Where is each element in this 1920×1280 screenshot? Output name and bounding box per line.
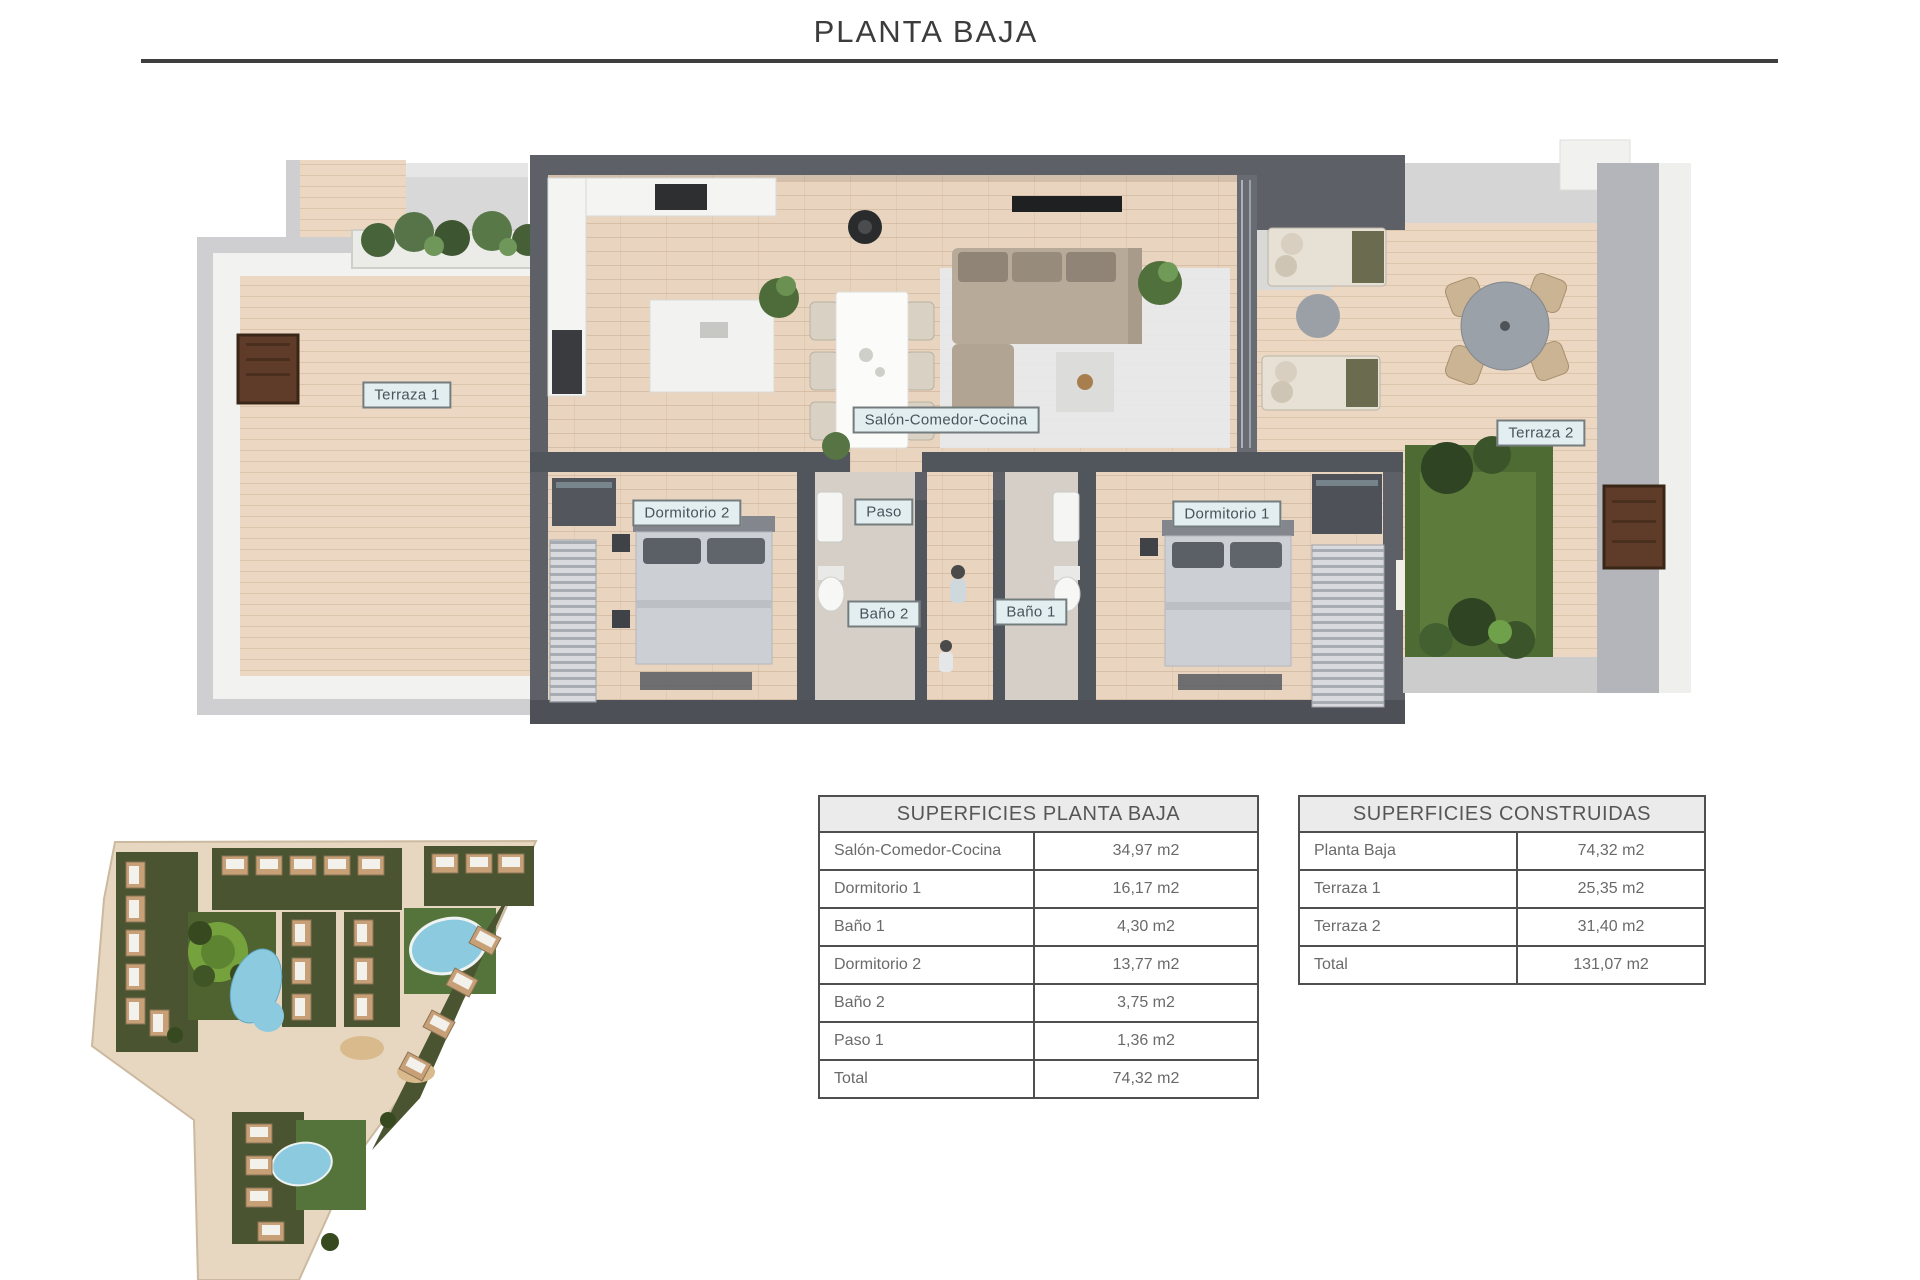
title-divider xyxy=(141,59,1778,63)
plant xyxy=(1158,262,1178,282)
area-cell: 25,35 m2 xyxy=(1518,871,1704,907)
terraza-2-gate xyxy=(1604,486,1664,568)
superficies-construidas-table: SUPERFICIES CONSTRUIDAS Planta Baja 74,3… xyxy=(1298,795,1706,985)
site-plan xyxy=(92,841,536,1280)
room-name-cell: Baño 2 xyxy=(820,985,1035,1021)
ottoman xyxy=(1296,294,1340,338)
table-row: Total 74,32 m2 xyxy=(820,1061,1257,1097)
table-row: Baño 2 3,75 m2 xyxy=(820,985,1257,1023)
room-name-cell: Total xyxy=(820,1061,1035,1097)
sun-lounger xyxy=(1262,356,1380,410)
area-cell: 74,32 m2 xyxy=(1518,833,1704,869)
terraza-1-area xyxy=(205,160,561,707)
area-cell: 1,36 m2 xyxy=(1035,1023,1257,1059)
table-title: SUPERFICIES CONSTRUIDAS xyxy=(1300,797,1704,833)
plant xyxy=(776,276,796,296)
table-row: Salón-Comedor-Cocina 34,97 m2 xyxy=(820,833,1257,871)
sun-lounger xyxy=(1268,228,1386,286)
table-row: Dormitorio 1 16,17 m2 xyxy=(820,871,1257,909)
room-name-cell: Planta Baja xyxy=(1300,833,1518,869)
room-label-salon: Salón-Comedor-Cocina xyxy=(853,407,1040,434)
ceiling-lamp xyxy=(848,210,882,244)
table-row: Paso 1 1,36 m2 xyxy=(820,1023,1257,1061)
table-row: Dormitorio 2 13,77 m2 xyxy=(820,947,1257,985)
table-row: Planta Baja 74,32 m2 xyxy=(1300,833,1704,871)
superficies-planta-baja-table: SUPERFICIES PLANTA BAJA Salón-Comedor-Co… xyxy=(818,795,1259,1099)
room-label-bano-2: Baño 2 xyxy=(847,601,920,628)
room-name-cell: Paso 1 xyxy=(820,1023,1035,1059)
room-name-cell: Total xyxy=(1300,947,1518,983)
area-cell: 31,40 m2 xyxy=(1518,909,1704,945)
table-row: Terraza 1 25,35 m2 xyxy=(1300,871,1704,909)
area-cell: 3,75 m2 xyxy=(1035,985,1257,1021)
garden xyxy=(1396,436,1553,659)
terraza-1-gate xyxy=(238,335,298,403)
room-name-cell: Baño 1 xyxy=(820,909,1035,945)
page-title: PLANTA BAJA xyxy=(0,14,1852,50)
area-cell: 74,32 m2 xyxy=(1035,1061,1257,1097)
plant xyxy=(822,432,850,460)
area-cell: 16,17 m2 xyxy=(1035,871,1257,907)
table-title: SUPERFICIES PLANTA BAJA xyxy=(820,797,1257,833)
table-row: Terraza 2 31,40 m2 xyxy=(1300,909,1704,947)
room-name-cell: Salón-Comedor-Cocina xyxy=(820,833,1035,869)
room-label-dormitorio-2: Dormitorio 2 xyxy=(632,500,741,527)
table-row: Baño 1 4,30 m2 xyxy=(820,909,1257,947)
room-label-terraza-1: Terraza 1 xyxy=(362,382,451,409)
floor-plan-sheet: PLANTA BAJA Terraza 1 Salón-Comedor-Coci… xyxy=(0,0,1920,1280)
room-label-paso: Paso xyxy=(854,499,913,526)
tv-panel xyxy=(1012,196,1122,212)
room-label-dormitorio-1: Dormitorio 1 xyxy=(1172,501,1281,528)
room-label-bano-1: Baño 1 xyxy=(994,599,1067,626)
room-label-terraza-2: Terraza 2 xyxy=(1496,420,1585,447)
room-name-cell: Terraza 1 xyxy=(1300,871,1518,907)
area-cell: 4,30 m2 xyxy=(1035,909,1257,945)
area-cell: 13,77 m2 xyxy=(1035,947,1257,983)
area-cell: 34,97 m2 xyxy=(1035,833,1257,869)
table-row: Total 131,07 m2 xyxy=(1300,947,1704,983)
area-cell: 131,07 m2 xyxy=(1518,947,1704,983)
room-name-cell: Dormitorio 1 xyxy=(820,871,1035,907)
room-name-cell: Dormitorio 2 xyxy=(820,947,1035,983)
room-name-cell: Terraza 2 xyxy=(1300,909,1518,945)
